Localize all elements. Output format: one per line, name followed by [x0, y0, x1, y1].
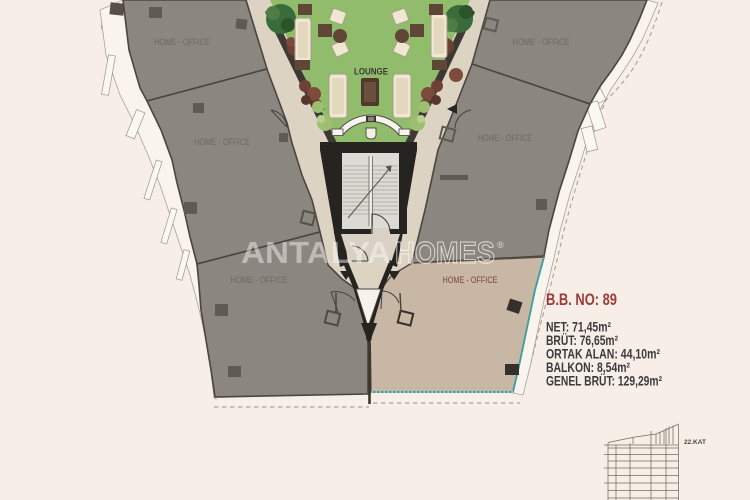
svg-text:HOMES: HOMES: [395, 235, 495, 270]
svg-text:HOME - OFFICE: HOME - OFFICE: [478, 133, 532, 143]
svg-text:GENEL BRÜT: 129,29m²: GENEL BRÜT: 129,29m²: [546, 373, 662, 389]
svg-text:HOME - OFFICE: HOME - OFFICE: [443, 275, 498, 285]
svg-text:HOME - OFFICE: HOME - OFFICE: [194, 137, 250, 147]
svg-text:HOME - OFFICE: HOME - OFFICE: [231, 275, 288, 285]
svg-text:B.B. NO: 89: B.B. NO: 89: [546, 290, 617, 309]
svg-text:LOUNGE: LOUNGE: [354, 67, 388, 78]
svg-text:HOME - OFFICE: HOME - OFFICE: [154, 37, 210, 47]
svg-text:®: ®: [497, 240, 504, 250]
svg-text:22.KAT: 22.KAT: [684, 439, 706, 446]
svg-text:ANTALYA: ANTALYA: [241, 235, 391, 270]
svg-text:HOME - OFFICE: HOME - OFFICE: [513, 37, 570, 47]
